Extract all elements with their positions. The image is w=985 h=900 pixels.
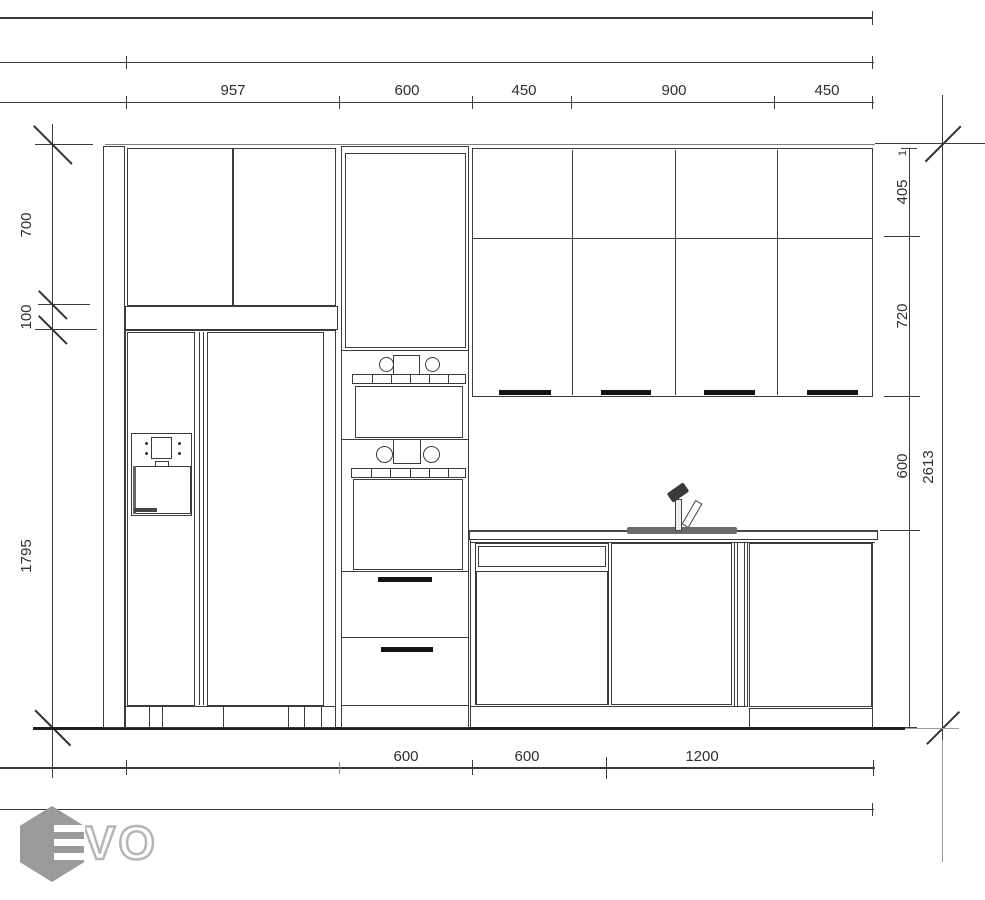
dim-label-right-720: 720 — [896, 286, 910, 346]
floor-line-extension — [905, 728, 959, 729]
oven-display — [393, 439, 421, 464]
oven-knob — [379, 357, 394, 372]
fridge-door-gap-line — [203, 332, 204, 705]
dim-tick — [126, 56, 127, 69]
plinth-divider — [321, 707, 322, 727]
cabinet-row-divider — [472, 238, 873, 239]
extension-line — [35, 144, 93, 145]
logo-text: VO — [84, 818, 158, 868]
dim-line — [0, 102, 874, 103]
dim-tick — [901, 530, 917, 531]
base-cabinet-door — [476, 571, 608, 705]
dim-label-top-450b: 450 — [797, 84, 857, 98]
handle-segment-line — [410, 375, 411, 383]
cabinet-top-edge — [105, 144, 875, 146]
dim-label-left-100: 100 — [20, 287, 34, 347]
door-gap-line — [744, 543, 745, 707]
oven-handle — [351, 468, 466, 478]
oven-display — [393, 355, 420, 376]
plinth-divider — [304, 707, 305, 727]
dim-tick — [472, 760, 473, 775]
handle-segment-line — [391, 375, 392, 383]
fridge-door-right — [207, 332, 324, 706]
cabinet-divider — [572, 150, 573, 395]
base-side-panel — [470, 540, 471, 728]
dim-tick — [571, 96, 572, 109]
dim-line — [0, 767, 875, 769]
fridge-door-left — [127, 332, 195, 706]
dim-label-top-600: 600 — [377, 84, 437, 98]
dispenser-dot — [178, 452, 181, 455]
door-gap-line — [734, 543, 735, 707]
blueprint-canvas: 957 600 450 900 450 700 100 1795 40 — [0, 0, 985, 900]
plinth-line — [749, 708, 873, 709]
cabinet-divider — [777, 150, 778, 395]
dim-label-marker: 1 — [896, 123, 910, 183]
cabinet-handle — [807, 390, 858, 395]
dim-tick — [606, 757, 607, 779]
faucet-lever — [682, 500, 703, 528]
dispenser-recess — [134, 466, 191, 514]
dim-line — [0, 809, 874, 810]
handle-segment-line — [410, 469, 411, 477]
dim-tick — [339, 762, 340, 774]
tall-cabinet-door — [345, 153, 466, 348]
dim-label-bottom-1200: 1200 — [672, 750, 732, 764]
dim-tick — [901, 396, 917, 397]
cabinet-divider — [675, 150, 676, 395]
handle-segment-line — [448, 469, 449, 477]
plinth-divider — [288, 707, 289, 727]
handle-segment-line — [448, 375, 449, 383]
dim-tick — [872, 96, 873, 109]
oven-handle — [352, 374, 466, 384]
base-cabinet-door — [611, 543, 732, 705]
drawer-line — [342, 571, 468, 572]
dim-label-bottom-600b: 600 — [497, 750, 557, 764]
plinth-divider — [149, 707, 150, 727]
oven-door-lower — [353, 479, 463, 570]
dim-label-right-600: 600 — [896, 436, 910, 496]
handle-segment-line — [390, 469, 391, 477]
plinth-divider — [162, 707, 163, 727]
dim-label-left-700: 700 — [20, 195, 34, 255]
dim-line — [52, 124, 53, 778]
extension-line — [875, 143, 985, 144]
drawer-handle — [378, 577, 432, 582]
door-gap-line — [747, 543, 748, 707]
dim-tick — [339, 96, 340, 109]
handle-segment-line — [372, 375, 373, 383]
dim-line — [0, 17, 873, 19]
dim-tick — [873, 760, 874, 776]
fridge-door-gap-line — [199, 332, 200, 705]
dispenser-dot — [145, 442, 148, 445]
cabinet-handle — [499, 390, 551, 395]
wall-cabinet-door — [127, 148, 233, 306]
base-drawer-front — [478, 546, 606, 567]
sink-rim — [627, 527, 737, 534]
dim-tick — [126, 96, 127, 109]
dim-tick — [901, 236, 917, 237]
dim-label-top-957: 957 — [203, 84, 263, 98]
plinth-divider — [223, 707, 224, 727]
dispenser-shadow — [133, 466, 136, 514]
dim-tick — [774, 96, 775, 109]
dispenser-dot — [178, 442, 181, 445]
oven-knob — [376, 446, 393, 463]
cabinet-handle — [704, 390, 755, 395]
dim-tick — [52, 759, 53, 776]
logo-stripe — [54, 853, 85, 860]
logo-stripe — [54, 839, 85, 846]
dim-line — [942, 95, 943, 740]
dispenser-button — [151, 437, 172, 459]
dispenser-tray — [134, 508, 157, 512]
dim-line — [942, 740, 943, 862]
oven-knob — [425, 357, 440, 372]
cabinet-handle — [601, 390, 651, 395]
dim-label-bottom-600a: 600 — [376, 750, 436, 764]
plinth-line — [471, 706, 747, 707]
faucet-body — [675, 499, 682, 531]
dispenser-dot — [145, 452, 148, 455]
base-cabinet-door — [749, 543, 872, 707]
dim-tick — [126, 760, 127, 775]
drawer-line — [342, 637, 468, 638]
door-gap-line — [737, 543, 738, 707]
logo-stripe — [54, 825, 85, 832]
wall-cabinet-block — [472, 148, 873, 397]
dim-label-total-height: 2613 — [922, 437, 936, 497]
base-side-panel — [872, 543, 873, 728]
handle-segment-line — [429, 469, 430, 477]
dim-label-left-1795: 1795 — [20, 526, 34, 586]
wall-cabinet-door — [233, 148, 336, 306]
extension-line — [35, 329, 97, 330]
filler-panel — [103, 146, 125, 728]
dim-label-top-900: 900 — [644, 84, 704, 98]
drawer-line — [342, 705, 468, 706]
extension-line — [38, 304, 90, 305]
plinth-divider — [749, 708, 750, 728]
dim-line — [0, 62, 874, 63]
dim-label-top-450a: 450 — [494, 84, 554, 98]
handle-segment-line — [429, 375, 430, 383]
dim-tick — [872, 11, 873, 25]
shelf-line — [342, 350, 468, 351]
dim-tick — [472, 96, 473, 109]
dim-tick — [872, 803, 873, 816]
dim-tick — [872, 56, 873, 69]
handle-segment-line — [371, 469, 372, 477]
oven-door-upper — [355, 386, 463, 438]
fridge-top-panel — [125, 306, 338, 330]
drawer-handle — [381, 647, 433, 652]
oven-knob — [423, 446, 440, 463]
